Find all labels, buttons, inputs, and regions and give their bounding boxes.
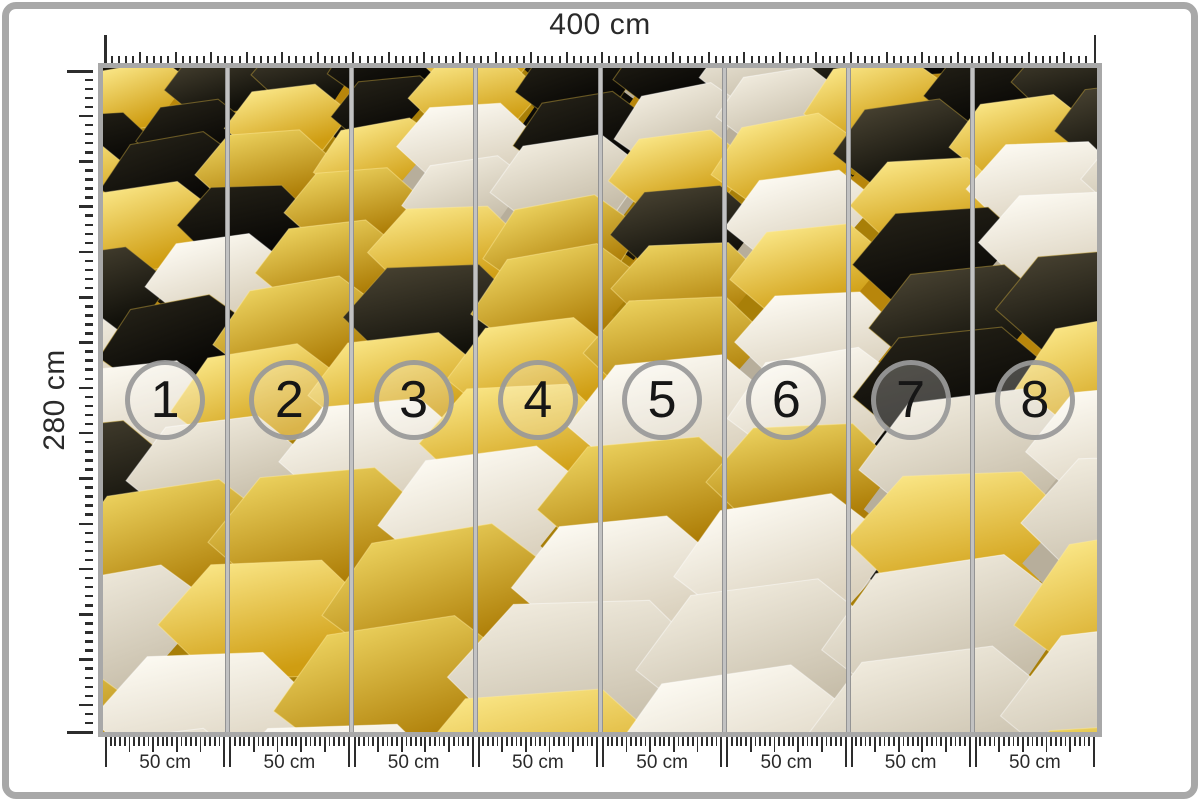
- ruler-tick: [401, 737, 403, 752]
- ruler-tick: [511, 737, 513, 746]
- ruler-tick: [1074, 737, 1076, 746]
- ruler-tick: [402, 56, 404, 63]
- ruler-tick: [200, 737, 202, 752]
- panel-divider: [349, 68, 354, 732]
- ruler-tick: [118, 56, 120, 63]
- ruler-tick: [319, 737, 321, 746]
- ruler-tick: [295, 737, 297, 746]
- panel-divider: [225, 68, 230, 732]
- ruler-tick: [274, 56, 276, 63]
- ruler-tick: [1093, 737, 1095, 767]
- ruler-tick: [79, 387, 93, 390]
- ruler-tick: [124, 737, 126, 746]
- ruler-tick: [845, 737, 847, 767]
- ruler-tick: [448, 737, 450, 752]
- photo-frame: 1 2 3 4 5 6 7 8: [98, 63, 1102, 737]
- ruler-tick: [85, 332, 93, 335]
- ruler-tick: [1055, 737, 1057, 746]
- segment-width-label: 50 cm: [761, 752, 813, 774]
- ruler-tick: [772, 56, 774, 63]
- ruler-tick: [608, 56, 610, 63]
- ruler-tick: [288, 56, 290, 63]
- ruler-tick: [720, 737, 722, 767]
- ruler-tick: [79, 296, 93, 299]
- ruler-tick: [1063, 52, 1065, 63]
- ruler-tick: [204, 737, 206, 746]
- segment-width-label: 50 cm: [636, 752, 688, 774]
- ruler-tick: [654, 737, 656, 746]
- height-dimension-label: 280 cm: [38, 349, 72, 450]
- ruler-tick: [239, 737, 241, 746]
- ruler-tick: [659, 737, 661, 746]
- ruler-tick: [182, 56, 184, 63]
- ruler-tick: [821, 737, 823, 752]
- ruler-tick: [85, 287, 93, 290]
- ruler-tick: [553, 737, 555, 746]
- ruler-tick: [409, 56, 411, 63]
- ruler-tick: [673, 737, 675, 752]
- ruler-tick: [300, 737, 302, 752]
- ruler-tick: [715, 56, 717, 63]
- ruler-tick: [85, 677, 93, 680]
- ruler-tick: [85, 631, 93, 634]
- ruler-tick: [816, 737, 818, 746]
- ruler-tick: [438, 56, 440, 63]
- ruler-tick: [563, 737, 565, 746]
- ruler-tick: [602, 737, 604, 767]
- ruler-tick: [672, 52, 674, 63]
- ruler-tick: [85, 133, 93, 136]
- ruler-tick: [630, 56, 632, 63]
- ruler-tick: [994, 737, 996, 746]
- ruler-tick: [701, 737, 703, 746]
- ruler-tick: [246, 52, 248, 63]
- ruler-tick: [139, 52, 141, 63]
- ruler-tick: [802, 737, 804, 746]
- ruler-tick: [458, 737, 460, 746]
- ruler-tick: [439, 737, 441, 746]
- panel-number: 4: [523, 374, 552, 426]
- ruler-tick: [1079, 737, 1081, 746]
- ruler-tick: [888, 737, 890, 746]
- ruler-tick: [729, 56, 731, 63]
- ruler-tick: [295, 56, 297, 63]
- ruler-tick: [1078, 56, 1080, 63]
- ruler-tick: [85, 513, 93, 516]
- ruler-tick: [85, 323, 93, 326]
- ruler-tick: [333, 737, 335, 746]
- ruler-tick: [478, 737, 480, 767]
- ruler-tick: [396, 737, 398, 746]
- ruler-tick: [67, 70, 93, 73]
- ruler-tick: [343, 737, 345, 746]
- ruler-tick: [623, 56, 625, 63]
- ruler-tick: [189, 56, 191, 63]
- ruler-tick: [79, 251, 93, 254]
- ruler-tick: [424, 737, 426, 752]
- ruler-tick: [462, 737, 464, 746]
- ruler-tick: [921, 52, 923, 63]
- ruler-tick: [358, 737, 360, 746]
- ruler-tick: [701, 56, 703, 63]
- ruler-tick: [950, 56, 952, 63]
- ruler-tick: [79, 568, 93, 571]
- ruler-tick: [85, 368, 93, 371]
- ruler-tick: [310, 56, 312, 63]
- ruler-tick: [566, 52, 568, 63]
- ruler-tick: [85, 359, 93, 362]
- ruler-tick: [687, 737, 689, 746]
- ruler-tick: [616, 737, 618, 746]
- ruler-tick: [459, 52, 461, 63]
- width-dimension-label: 400 cm: [549, 8, 650, 42]
- panel-number-circle: 7: [871, 360, 951, 440]
- ruler-tick: [1070, 56, 1072, 63]
- ruler-tick: [85, 713, 93, 716]
- ruler-tick: [850, 52, 852, 63]
- ruler-tick: [445, 56, 447, 63]
- ruler-tick: [955, 737, 957, 746]
- ruler-tick: [281, 52, 283, 63]
- ruler-tick: [85, 260, 93, 263]
- ruler-tick: [85, 486, 93, 489]
- ruler-tick: [573, 56, 575, 63]
- ruler-tick: [345, 56, 347, 63]
- ruler-tick: [523, 56, 525, 63]
- ruler-tick: [658, 56, 660, 63]
- ruler-tick: [453, 737, 455, 746]
- ruler-tick: [945, 737, 947, 752]
- ruler-tick: [416, 56, 418, 63]
- ruler-tick: [324, 56, 326, 63]
- ruler-tick: [85, 214, 93, 217]
- ruler-tick: [85, 495, 93, 498]
- ruler-tick: [387, 737, 389, 746]
- ruler-tick: [1021, 56, 1023, 63]
- ruler-tick: [582, 737, 584, 746]
- ruler-tick: [594, 56, 596, 63]
- ruler-tick: [85, 532, 93, 535]
- ruler-tick: [722, 56, 724, 63]
- ruler-tick: [792, 737, 794, 746]
- ruler-tick: [1022, 737, 1024, 752]
- ruler-tick: [865, 737, 867, 746]
- ruler-tick: [708, 52, 710, 63]
- ruler-tick: [864, 56, 866, 63]
- ruler-tick: [185, 737, 187, 746]
- ruler-tick: [516, 56, 518, 63]
- ruler-tick: [506, 737, 508, 746]
- ruler-tick: [975, 737, 977, 767]
- wallpaper-panel-diagram: 400 cm 280 cm 50 cm 50 cm 50 cm 50 cm 50…: [0, 0, 1200, 801]
- ruler-tick: [224, 56, 226, 63]
- panel-number-circle: 6: [746, 360, 826, 440]
- ruler-tick: [998, 737, 1000, 752]
- ruler-tick: [751, 56, 753, 63]
- ruler-tick: [942, 56, 944, 63]
- ruler-tick: [338, 56, 340, 63]
- ruler-tick: [363, 737, 365, 746]
- ruler-tick: [978, 56, 980, 63]
- panel-number: 5: [648, 374, 677, 426]
- ruler-tick: [487, 56, 489, 63]
- ruler-tick: [374, 56, 376, 63]
- ruler-tick: [736, 56, 738, 63]
- ruler-tick: [611, 737, 613, 746]
- ruler-tick: [755, 737, 757, 746]
- ruler-tick: [281, 737, 283, 746]
- ruler-tick: [146, 56, 148, 63]
- ruler-tick: [314, 737, 316, 746]
- ruler-tick: [85, 97, 93, 100]
- panel-divider: [846, 68, 851, 732]
- ruler-tick: [843, 56, 845, 63]
- ruler-tick: [509, 56, 511, 63]
- ruler-tick: [530, 52, 532, 63]
- ruler-tick: [85, 468, 93, 471]
- ruler-tick: [591, 737, 593, 746]
- ruler-tick: [85, 269, 93, 272]
- ruler-tick: [935, 56, 937, 63]
- ruler-tick: [209, 737, 211, 746]
- ruler-tick: [352, 52, 354, 63]
- ruler-tick: [105, 737, 107, 767]
- ruler-tick: [472, 737, 474, 767]
- ruler-tick: [143, 737, 145, 746]
- ruler-tick: [502, 56, 504, 63]
- ruler-tick: [635, 737, 637, 746]
- ruler-tick: [764, 737, 766, 746]
- ruler-tick: [649, 737, 651, 752]
- ruler-tick: [668, 737, 670, 746]
- ruler-tick: [85, 441, 93, 444]
- ruler-tick: [214, 737, 216, 746]
- ruler-tick: [969, 737, 971, 767]
- ruler-tick: [85, 378, 93, 381]
- ruler-tick: [1094, 35, 1097, 63]
- ruler-tick: [1088, 737, 1090, 746]
- ruler-tick: [480, 56, 482, 63]
- ruler-tick: [979, 737, 981, 746]
- ruler-tick: [181, 737, 183, 746]
- ruler-tick: [893, 737, 895, 746]
- ruler-tick: [1032, 737, 1034, 746]
- ruler-tick: [516, 737, 518, 746]
- ruler-tick: [607, 737, 609, 746]
- ruler-tick: [736, 737, 738, 746]
- ruler-tick: [85, 450, 93, 453]
- ruler-tick: [443, 737, 445, 746]
- ruler-tick: [520, 737, 522, 746]
- ruler-tick: [153, 56, 155, 63]
- ruler-tick: [663, 737, 665, 746]
- ruler-tick: [884, 737, 886, 746]
- ruler-tick: [85, 196, 93, 199]
- segment-width-label: 50 cm: [264, 752, 316, 774]
- ruler-tick: [940, 737, 942, 746]
- panel-number-circle: 2: [249, 360, 329, 440]
- ruler-tick: [482, 737, 484, 746]
- ruler-tick: [329, 737, 331, 746]
- ruler-tick: [467, 737, 469, 746]
- ruler-tick: [1042, 56, 1044, 63]
- ruler-tick: [253, 56, 255, 63]
- ruler-tick: [682, 737, 684, 746]
- ruler-tick: [950, 737, 952, 746]
- ruler-tick: [239, 56, 241, 63]
- ruler-tick: [79, 160, 93, 163]
- panel-number-circle: 3: [374, 360, 454, 440]
- ruler-tick: [258, 737, 260, 746]
- ruler-tick: [423, 52, 425, 63]
- ruler-tick: [85, 142, 93, 145]
- ruler-tick: [85, 504, 93, 507]
- ruler-tick: [67, 731, 93, 734]
- ruler-tick: [473, 56, 475, 63]
- ruler-tick: [687, 56, 689, 63]
- ruler-tick: [85, 350, 93, 353]
- ruler-tick: [79, 613, 93, 616]
- ruler-tick: [1013, 737, 1015, 746]
- ruler-tick: [85, 722, 93, 725]
- panel-number: 8: [1020, 374, 1049, 426]
- ruler-tick: [1017, 737, 1019, 746]
- panel-number-circle: 8: [995, 360, 1075, 440]
- ruler-tick: [836, 56, 838, 63]
- ruler-tick: [855, 737, 857, 746]
- ruler-tick: [1049, 56, 1051, 63]
- ruler-tick: [85, 224, 93, 227]
- ruler-tick: [138, 737, 140, 746]
- ruler-tick: [539, 737, 541, 746]
- ruler-tick: [758, 56, 760, 63]
- ruler-tick: [921, 737, 923, 752]
- ruler-tick: [651, 56, 653, 63]
- ruler-tick: [85, 396, 93, 399]
- ruler-tick: [157, 737, 159, 746]
- ruler-tick: [79, 115, 93, 118]
- ruler-tick: [354, 737, 356, 767]
- ruler-tick: [277, 737, 279, 752]
- ruler-tick: [637, 52, 639, 63]
- ruler-tick: [85, 414, 93, 417]
- ruler-tick: [797, 737, 799, 752]
- ruler-tick: [706, 737, 708, 746]
- ruler-tick: [743, 52, 745, 63]
- ruler-tick: [79, 205, 93, 208]
- ruler-tick: [85, 577, 93, 580]
- ruler-tick: [783, 737, 785, 746]
- ruler-tick: [811, 737, 813, 746]
- ruler-tick: [879, 737, 881, 746]
- ruler-tick: [1008, 737, 1010, 746]
- ruler-tick: [1036, 737, 1038, 746]
- ruler-tick: [971, 56, 973, 63]
- ruler-tick: [1056, 56, 1058, 63]
- ruler-tick: [79, 477, 93, 480]
- ruler-tick: [148, 737, 150, 746]
- ruler-tick: [601, 52, 603, 63]
- ruler-tick: [85, 233, 93, 236]
- ruler-tick: [253, 737, 255, 752]
- ruler-tick: [898, 737, 900, 752]
- ruler-tick: [85, 695, 93, 698]
- ruler-tick: [317, 52, 319, 63]
- ruler-tick: [835, 737, 837, 746]
- ruler-tick: [104, 35, 107, 63]
- ruler-tick: [587, 56, 589, 63]
- ruler-tick: [1085, 56, 1087, 63]
- ruler-tick: [372, 737, 374, 746]
- ruler-tick: [166, 737, 168, 746]
- ruler-tick: [167, 56, 169, 63]
- ruler-tick: [377, 737, 379, 752]
- panel-number-circle: 4: [498, 360, 578, 440]
- ruler-tick: [85, 595, 93, 598]
- ruler-tick: [286, 737, 288, 746]
- ruler-tick: [694, 56, 696, 63]
- ruler-tick: [544, 56, 546, 63]
- panel-divider: [598, 68, 603, 732]
- ruler-tick: [262, 737, 264, 746]
- ruler-tick: [750, 737, 752, 752]
- ruler-tick: [85, 622, 93, 625]
- ruler-tick: [765, 56, 767, 63]
- ruler-tick: [129, 737, 131, 752]
- ruler-tick: [1069, 737, 1071, 752]
- ruler-tick: [959, 737, 961, 746]
- ruler-tick: [324, 737, 326, 752]
- panel-number: 3: [399, 374, 428, 426]
- ruler-tick: [119, 737, 121, 746]
- ruler-tick: [367, 56, 369, 63]
- ruler-tick: [621, 737, 623, 746]
- ruler-tick: [85, 305, 93, 308]
- ruler-tick: [957, 52, 959, 63]
- ruler-tick: [415, 737, 417, 746]
- ruler-tick: [912, 737, 914, 746]
- ruler-tick: [577, 737, 579, 746]
- ruler-tick: [1014, 56, 1016, 63]
- ruler-tick: [267, 56, 269, 63]
- ruler-tick: [497, 737, 499, 746]
- ruler-tick: [111, 56, 113, 63]
- ruler-tick: [85, 88, 93, 91]
- ruler-tick: [452, 56, 454, 63]
- panel-number-circle: 1: [125, 360, 205, 440]
- ruler-tick: [175, 52, 177, 63]
- ruler-tick: [85, 423, 93, 426]
- ruler-tick: [992, 52, 994, 63]
- ruler-tick: [260, 56, 262, 63]
- ruler-tick: [85, 242, 93, 245]
- segment-width-label: 50 cm: [388, 752, 440, 774]
- ruler-tick: [985, 56, 987, 63]
- ruler-tick: [85, 124, 93, 127]
- ruler-tick: [626, 737, 628, 752]
- panel-number: 2: [275, 374, 304, 426]
- ruler-tick: [644, 56, 646, 63]
- ruler-tick: [85, 686, 93, 689]
- ruler-tick: [596, 737, 598, 767]
- ruler-tick: [587, 737, 589, 746]
- ruler-tick: [495, 52, 497, 63]
- ruler-tick: [551, 56, 553, 63]
- ruler-tick: [774, 737, 776, 752]
- segment-width-label: 50 cm: [1009, 752, 1061, 774]
- ruler-tick: [487, 737, 489, 746]
- ruler-tick: [229, 737, 231, 767]
